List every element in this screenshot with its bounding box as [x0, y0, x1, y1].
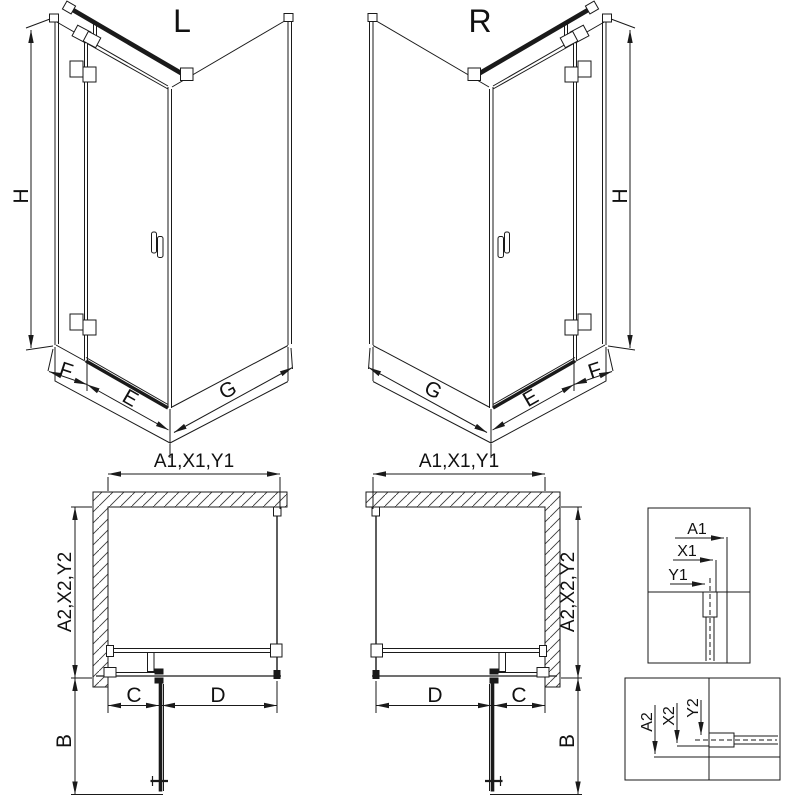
dim-label-side-left: G	[215, 376, 240, 404]
dim-label-a1-detail: A1	[687, 521, 707, 538]
dim-label-b-right-plan: B	[556, 734, 579, 748]
iso-left-geometry	[26, 1, 293, 458]
dim-label-height-left: H	[10, 188, 33, 203]
dim-label-d-right-plan: D	[427, 684, 442, 707]
plan-view-left: A1,X1,Y1 A2,X2,Y2 C D B	[53, 451, 287, 795]
iso-right-title: R	[468, 3, 491, 39]
dim-label-door-left: E	[118, 385, 142, 412]
dim-label-a2-detail: A2	[639, 712, 656, 732]
dim-label-y1-detail: Y1	[668, 567, 688, 584]
dim-label-d-left-plan: D	[210, 684, 225, 707]
dim-label-side-right: G	[420, 376, 445, 404]
dim-label-height-right: H	[609, 188, 632, 203]
technical-drawing-svg: L H F E G R H F E G A1,X1,Y1 A2,X2,Y2 C …	[0, 0, 800, 800]
dim-label-y2-detail: Y2	[685, 698, 702, 718]
iso-view-left: L H F E G	[10, 1, 293, 458]
dim-label-door-right: E	[519, 385, 543, 412]
shower-enclosure-dimension-drawing: L H F E G R H F E G A1,X1,Y1 A2,X2,Y2 C …	[0, 0, 800, 800]
dim-label-c-right-plan: C	[511, 684, 526, 707]
iso-view-right: R H F E G	[368, 1, 635, 458]
dim-label-side-right-plan: A2,X2,Y2	[558, 552, 579, 632]
dim-label-top-left-plan: A1,X1,Y1	[154, 451, 234, 472]
detail-floor-profile: A2 X2 Y2	[625, 678, 780, 780]
detail-wall-profile: A1 X1 Y1	[648, 508, 750, 663]
dim-label-b-left-plan: B	[53, 734, 76, 748]
plan-view-right: A1,X1,Y1 A2,X2,Y2 D C B	[366, 451, 582, 795]
wall-section-left-plan	[93, 492, 287, 687]
dim-label-x1-detail: X1	[677, 543, 697, 560]
iso-right-geometry	[368, 1, 635, 458]
dim-label-top-right-plan: A1,X1,Y1	[419, 451, 499, 472]
dim-label-c-left-plan: C	[126, 684, 141, 707]
iso-left-title: L	[173, 3, 191, 39]
dim-label-x2-detail: X2	[661, 706, 678, 726]
wall-section-right-plan	[366, 492, 560, 687]
dim-label-side-left-plan: A2,X2,Y2	[55, 552, 76, 632]
